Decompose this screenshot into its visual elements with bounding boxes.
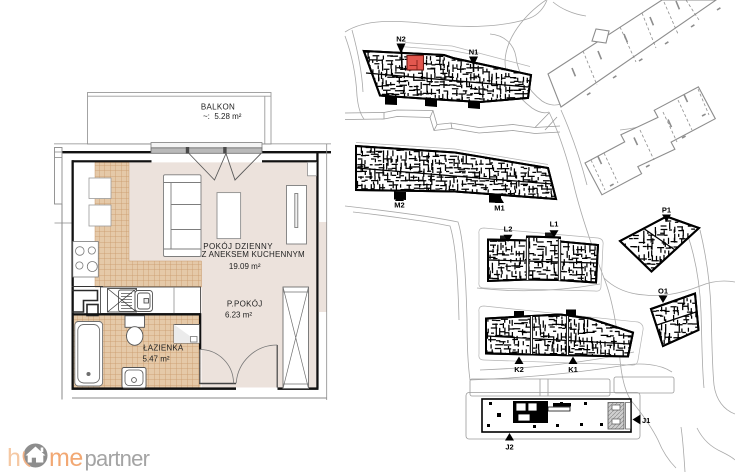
svg-text:~: 5.28 m²: ~: 5.28 m²: [203, 112, 242, 121]
svg-text:N2: N2: [396, 35, 406, 44]
svg-text:me: me: [49, 444, 83, 472]
svg-text:Z ANEKSEM KUCHENNYM: Z ANEKSEM KUCHENNYM: [202, 250, 306, 259]
svg-text:P.POKÓJ: P.POKÓJ: [227, 300, 263, 309]
svg-text:J2: J2: [505, 443, 513, 452]
svg-text:M2: M2: [394, 201, 404, 210]
svg-text:O1: O1: [658, 287, 668, 296]
svg-text:partner: partner: [85, 446, 150, 471]
svg-text:M1: M1: [494, 204, 504, 213]
svg-text:N1: N1: [469, 48, 479, 57]
svg-text:19.09 m²: 19.09 m²: [229, 262, 261, 271]
svg-text:J1: J1: [642, 416, 650, 425]
svg-text:6.23 m²: 6.23 m²: [225, 310, 252, 319]
svg-text:h: h: [7, 444, 21, 472]
svg-text:BALKON: BALKON: [201, 103, 235, 112]
svg-text:ŁAZIENKA: ŁAZIENKA: [143, 343, 184, 352]
svg-text:L2: L2: [504, 225, 513, 234]
svg-text:P1: P1: [662, 206, 671, 215]
svg-text:5.47 m²: 5.47 m²: [142, 355, 169, 364]
svg-text:L1: L1: [550, 220, 559, 229]
svg-text:K1: K1: [568, 365, 578, 374]
svg-text:K2: K2: [514, 365, 524, 374]
